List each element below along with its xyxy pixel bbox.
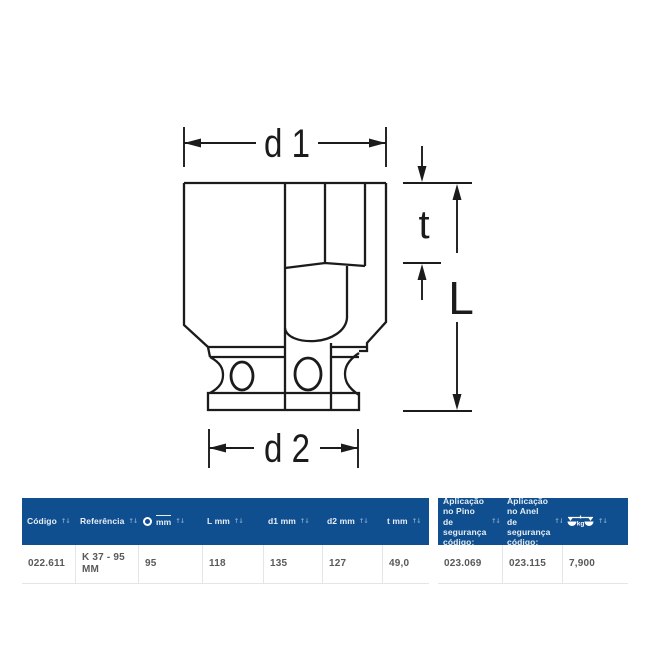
cell-hex-mm: 95 (138, 545, 202, 584)
column-d2-mm: d2 mm ↑↓ 127 (322, 498, 382, 584)
col-label: d1 mm (268, 516, 296, 526)
dimension-L: L (403, 184, 474, 411)
sort-icon[interactable]: ↑↓ (128, 518, 137, 526)
table-segment-applications: Aplicação no Pino de segurança código: ↑… (438, 498, 628, 584)
sort-icon[interactable]: ↑↓ (491, 518, 500, 526)
column-referencia: Referência ↑↓ K 37 - 95 MM (75, 498, 138, 584)
label-t: t (418, 203, 429, 247)
table-segment-dimensions: Código ↑↓ 022.611 Referência ↑↓ K 37 - 9… (22, 498, 429, 584)
dimension-d1: d 1 (184, 122, 386, 167)
hex-ring-icon (143, 517, 152, 526)
sort-icon[interactable]: ↑↓ (359, 518, 368, 526)
sort-icon[interactable]: ↑↓ (412, 518, 421, 526)
cell-peso-kg: 7,900 (562, 545, 628, 584)
col-header-l-mm[interactable]: L mm ↑↓ (202, 498, 263, 545)
column-d1-mm: d1 mm ↑↓ 135 (263, 498, 322, 584)
sort-icon[interactable]: ↑↓ (300, 518, 309, 526)
cell-l-mm: 118 (202, 545, 263, 584)
product-spec-page: d 1 t L d 2 (0, 0, 650, 650)
column-pino-seguranca: Aplicação no Pino de segurança código: ↑… (438, 498, 502, 584)
col-label: mm (156, 515, 171, 527)
table-gutter (429, 498, 438, 584)
ball-detent (231, 362, 253, 390)
label-d1: d 1 (264, 122, 310, 166)
sort-icon[interactable]: ↑↓ (234, 518, 243, 526)
col-header-peso-kg[interactable]: kg ↑↓ (562, 498, 628, 545)
dimension-d2: d 2 (209, 427, 358, 471)
col-header-codigo[interactable]: Código ↑↓ (22, 498, 75, 545)
cell-d1-mm: 135 (263, 545, 322, 584)
sort-icon[interactable]: ↑↓ (175, 518, 184, 526)
col-label: Aplicação no Pino de segurança código: (443, 496, 487, 546)
column-t-mm: t mm ↑↓ 49,0 (382, 498, 429, 584)
label-d2: d 2 (264, 427, 310, 471)
col-header-hex-mm[interactable]: mm ↑↓ (138, 498, 202, 545)
socket-technical-drawing: d 1 t L d 2 (0, 0, 650, 495)
column-hex-mm: mm ↑↓ 95 (138, 498, 202, 584)
col-label: Referência (80, 516, 124, 526)
col-header-anel-seguranca[interactable]: Aplicação no Anel de segurança código: ↑… (502, 498, 562, 545)
sort-icon[interactable]: ↑↓ (61, 518, 70, 526)
cell-referencia: K 37 - 95 MM (75, 545, 138, 584)
cell-pino-seguranca: 023.069 (438, 545, 502, 584)
column-anel-seguranca: Aplicação no Anel de segurança código: ↑… (502, 498, 562, 584)
product-table: Código ↑↓ 022.611 Referência ↑↓ K 37 - 9… (22, 498, 628, 584)
scale-kg-icon: kg (567, 515, 594, 529)
col-header-pino-seguranca[interactable]: Aplicação no Pino de segurança código: ↑… (438, 498, 502, 545)
col-header-referencia[interactable]: Referência ↑↓ (75, 498, 138, 545)
col-label: Aplicação no Anel de segurança código: (507, 496, 550, 546)
col-label: Código (27, 516, 57, 526)
column-peso-kg: kg ↑↓ 7,900 (562, 498, 628, 584)
kg-label: kg (577, 520, 585, 527)
col-label: t mm (387, 516, 408, 526)
col-label: d2 mm (327, 516, 355, 526)
cell-t-mm: 49,0 (382, 545, 429, 584)
cell-d2-mm: 127 (322, 545, 382, 584)
socket-section-lines (285, 183, 365, 410)
cell-codigo: 022.611 (22, 545, 75, 584)
col-label: L mm (207, 516, 230, 526)
pin-hole (295, 358, 321, 390)
cell-anel-seguranca: 023.115 (502, 545, 562, 584)
col-header-d2-mm[interactable]: d2 mm ↑↓ (322, 498, 382, 545)
col-header-t-mm[interactable]: t mm ↑↓ (382, 498, 429, 545)
column-l-mm: L mm ↑↓ 118 (202, 498, 263, 584)
label-L: L (448, 272, 474, 324)
sort-icon[interactable]: ↑↓ (598, 518, 607, 526)
col-header-d1-mm[interactable]: d1 mm ↑↓ (263, 498, 322, 545)
column-codigo: Código ↑↓ 022.611 (22, 498, 75, 584)
